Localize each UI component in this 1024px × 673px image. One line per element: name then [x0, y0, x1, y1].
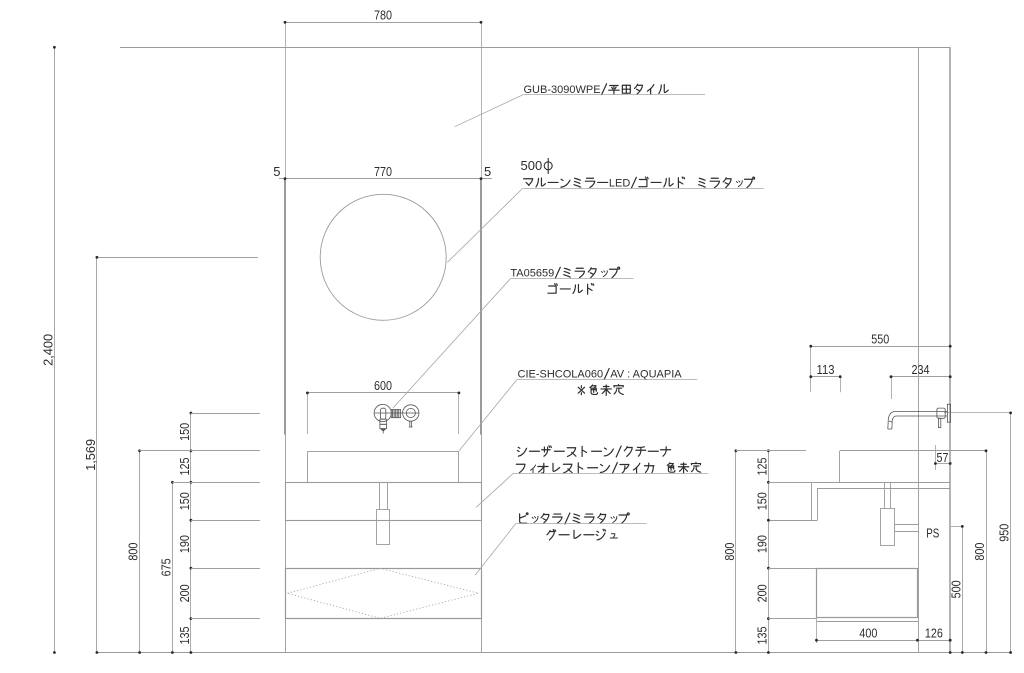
- svg-text:950: 950: [997, 524, 1012, 542]
- svg-text:800: 800: [722, 543, 737, 561]
- svg-text:200: 200: [754, 584, 769, 602]
- svg-text:675: 675: [158, 558, 173, 576]
- svg-text:TA05659: TA05659: [510, 267, 554, 279]
- svg-text:113: 113: [817, 362, 835, 377]
- svg-text:125: 125: [754, 458, 769, 476]
- svg-text:AV : AQUAPIA: AV : AQUAPIA: [610, 369, 682, 381]
- svg-text:550: 550: [871, 331, 889, 346]
- svg-text:190: 190: [754, 535, 769, 553]
- svg-text:800: 800: [972, 543, 987, 561]
- svg-text:200: 200: [177, 584, 192, 602]
- svg-text:PS: PS: [926, 526, 939, 541]
- svg-text:LED: LED: [609, 177, 630, 189]
- svg-text:500: 500: [948, 580, 963, 598]
- svg-text:126: 126: [925, 625, 943, 640]
- svg-text:2,400: 2,400: [40, 334, 55, 366]
- svg-text:150: 150: [177, 423, 192, 441]
- svg-text:CIE-SHCOLA060: CIE-SHCOLA060: [518, 369, 604, 381]
- svg-text:800: 800: [126, 543, 141, 561]
- svg-text:5: 5: [273, 164, 280, 179]
- svg-text:600: 600: [374, 378, 392, 393]
- svg-text:57: 57: [937, 450, 949, 465]
- svg-text:770: 770: [374, 164, 392, 179]
- svg-text:190: 190: [177, 535, 192, 553]
- svg-text:1,569: 1,569: [83, 439, 98, 471]
- svg-text:135: 135: [177, 627, 192, 645]
- svg-text:234: 234: [912, 362, 930, 377]
- svg-text:780: 780: [374, 8, 392, 23]
- svg-text:5: 5: [484, 164, 491, 179]
- svg-text:150: 150: [177, 492, 192, 510]
- svg-text:500: 500: [521, 158, 543, 173]
- svg-text:400: 400: [859, 625, 877, 640]
- svg-text:135: 135: [754, 627, 769, 645]
- svg-text:125: 125: [177, 458, 192, 476]
- svg-text:150: 150: [754, 492, 769, 510]
